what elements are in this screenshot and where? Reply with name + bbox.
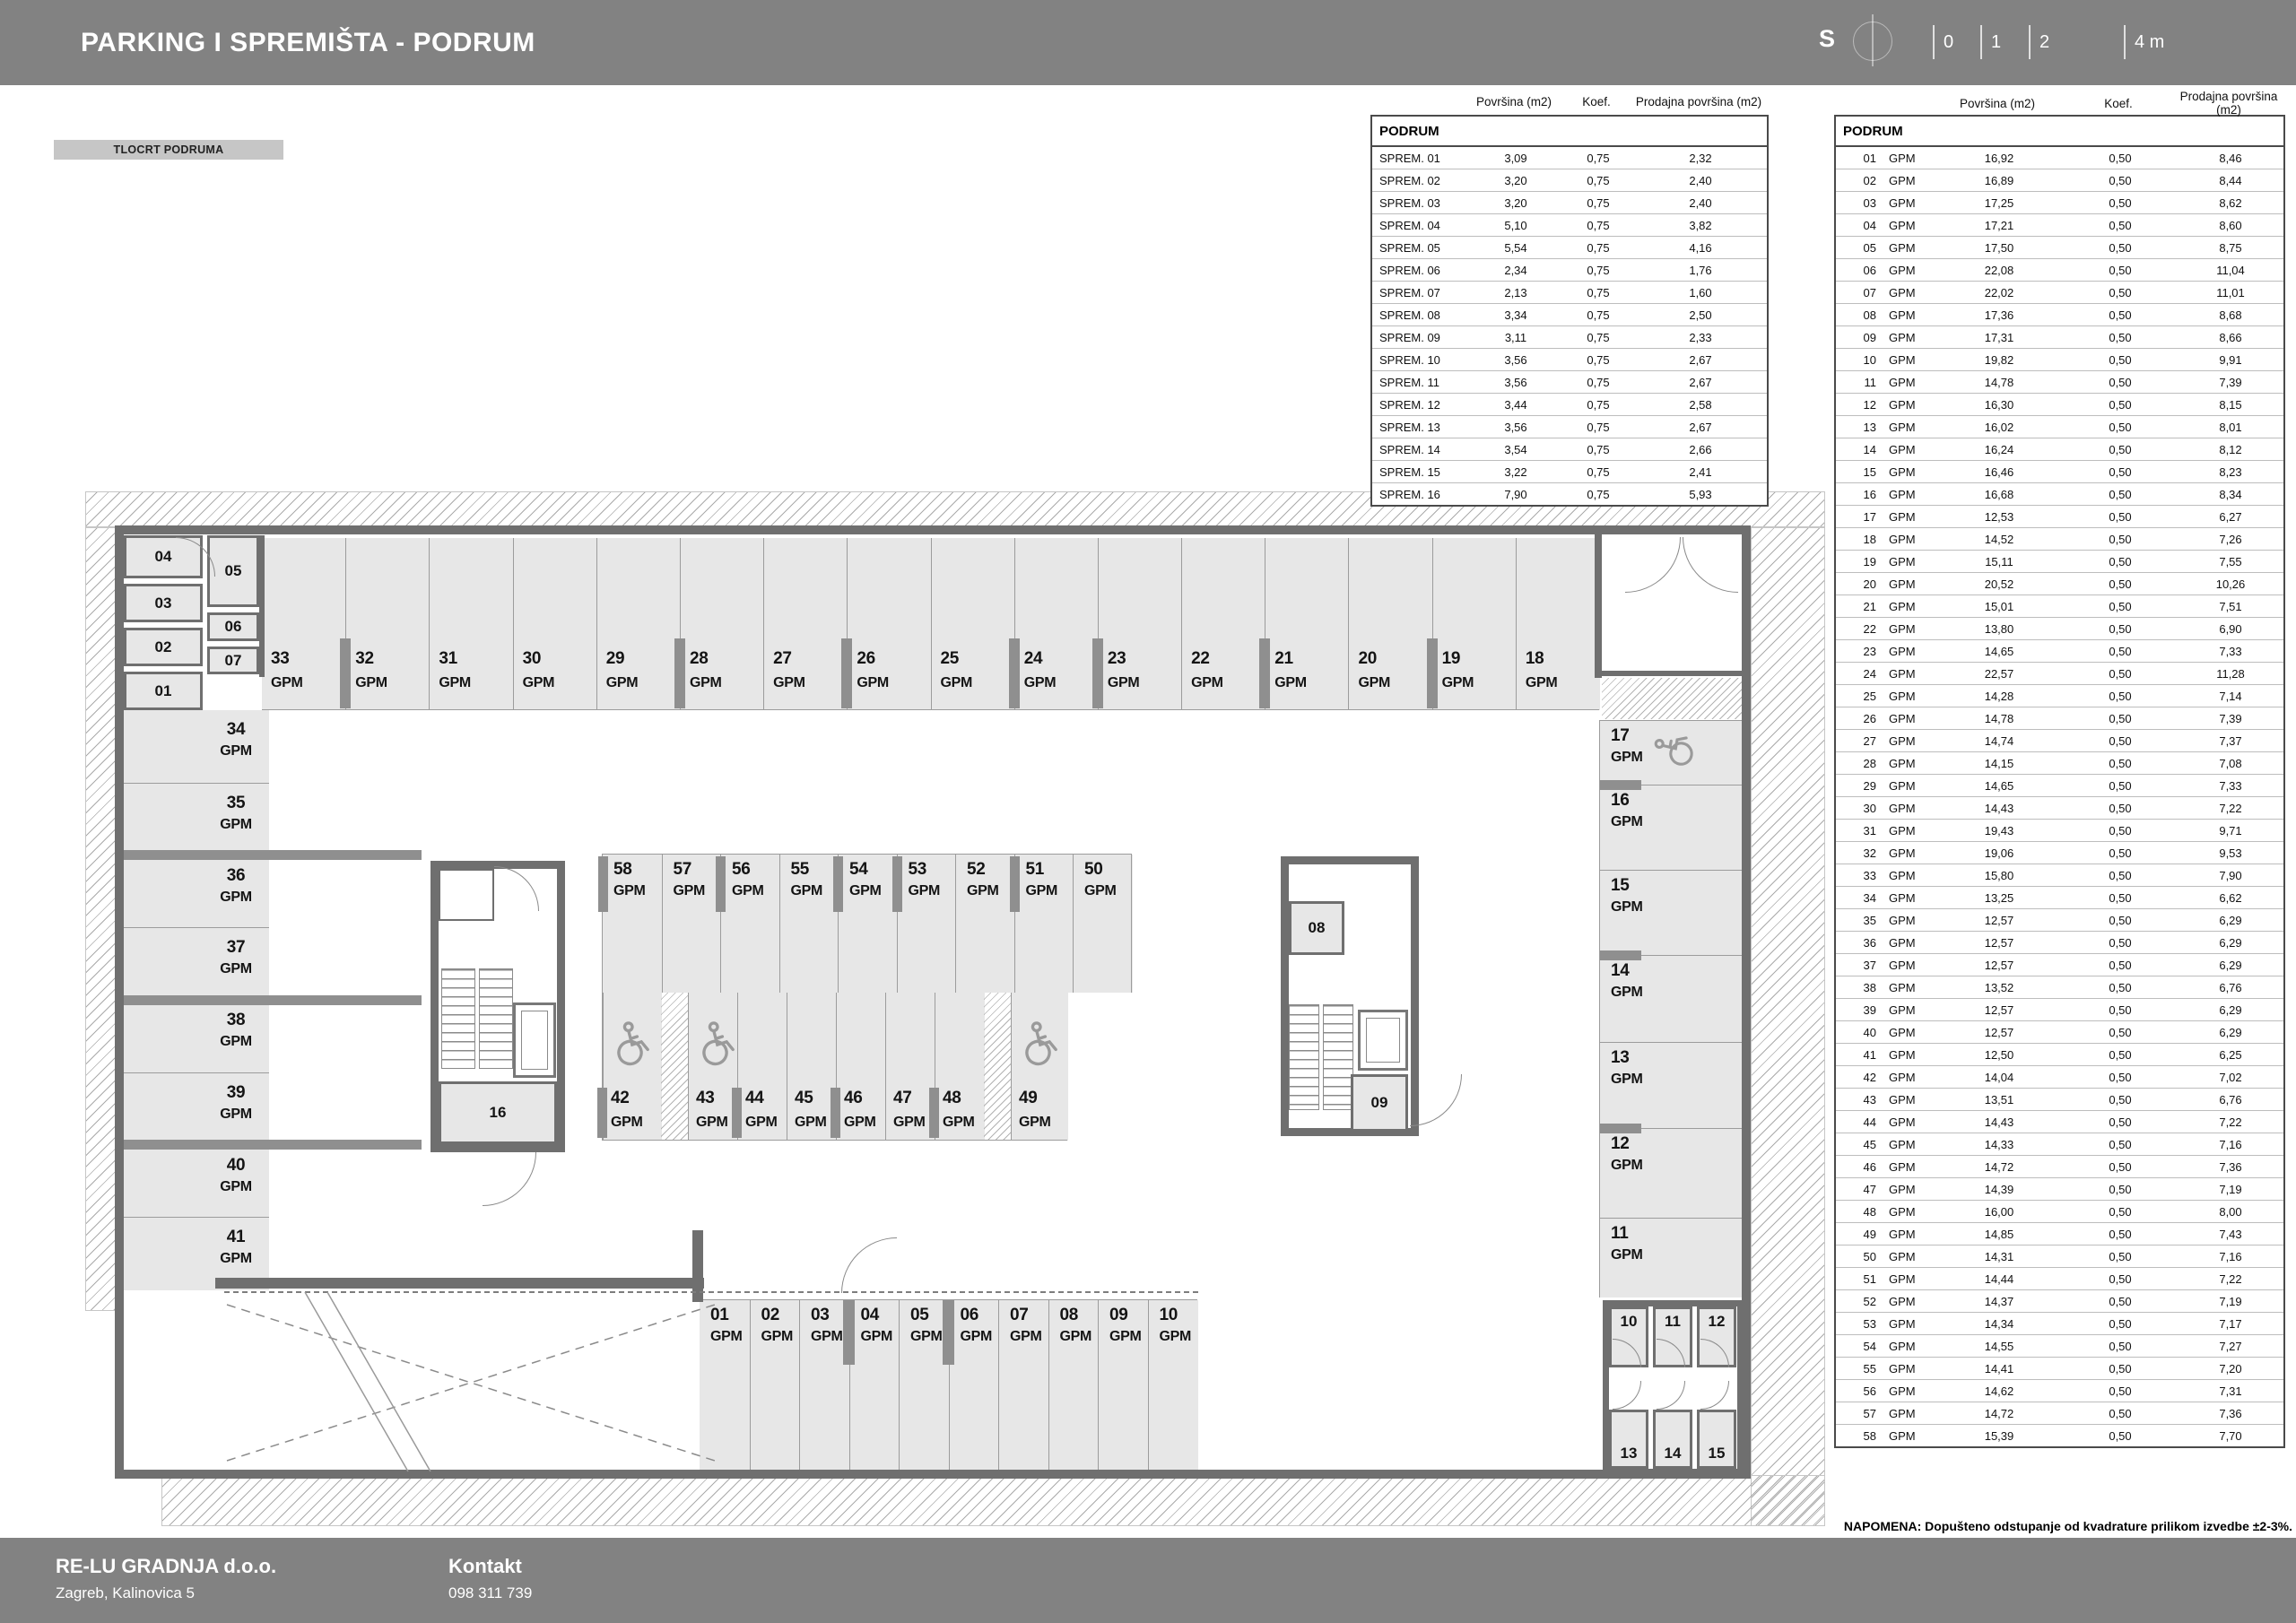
cell-povrsina: 12,50	[1932, 1048, 2066, 1062]
row-unit: GPM	[1876, 891, 1932, 905]
cell-koef: 0,50	[2066, 1138, 2174, 1151]
cell-povrsina: 17,21	[1932, 219, 2066, 232]
cell-prodajna: 2,41	[1631, 465, 1770, 479]
row-number: 24	[1836, 667, 1876, 681]
cell-povrsina: 14,28	[1932, 690, 2066, 703]
pillar	[1427, 638, 1438, 708]
parking-spot-19: 19GPM	[1432, 538, 1517, 710]
ramp-lines	[220, 1289, 722, 1475]
cell-povrsina: 12,57	[1932, 936, 2066, 950]
table-row: 22GPM13,800,506,90	[1836, 618, 2283, 640]
cell-prodajna: 7,26	[2174, 533, 2287, 546]
cell-povrsina: 22,02	[1932, 286, 2066, 299]
stairs	[479, 968, 513, 1069]
cell-koef: 0,50	[2066, 353, 2174, 367]
spot-edge	[602, 854, 1132, 855]
cell-koef: 0,50	[2066, 891, 2174, 905]
cell-prodajna: 8,23	[2174, 465, 2287, 479]
parking-spot-34: 34GPM	[124, 710, 269, 784]
spot-number: 03	[811, 1306, 830, 1324]
cell-prodajna: 6,29	[2174, 914, 2287, 927]
cell-koef: 0,50	[2066, 1026, 2174, 1039]
cell-koef: 0,75	[1566, 174, 1631, 187]
row-number: 53	[1836, 1317, 1876, 1331]
spot-unit: GPM	[732, 884, 764, 898]
spot-unit: GPM	[1611, 985, 1643, 1000]
spot-label: 35GPM	[210, 794, 262, 832]
cell-prodajna: 6,90	[2174, 622, 2287, 636]
cell-koef: 0,75	[1566, 152, 1631, 165]
spot-unit: GPM	[1611, 1248, 1643, 1263]
cell-koef: 0,50	[2066, 712, 2174, 725]
cell-prodajna: 10,26	[2174, 577, 2287, 591]
row-label: SPREM. 14	[1372, 443, 1465, 456]
row-unit: GPM	[1876, 1250, 1932, 1263]
cell-prodajna: 8,15	[2174, 398, 2287, 412]
cell-koef: 0,75	[1566, 241, 1631, 255]
cell-prodajna: 6,29	[2174, 1026, 2287, 1039]
cell-povrsina: 14,62	[1932, 1384, 2066, 1398]
pillar	[1600, 780, 1641, 790]
spot-unit: GPM	[1611, 751, 1643, 765]
spot-unit: GPM	[1109, 1330, 1142, 1344]
table-row: 58GPM15,390,507,70	[1836, 1425, 2283, 1446]
spot-number: 36	[210, 867, 262, 884]
table-row: 33GPM15,800,507,90	[1836, 864, 2283, 887]
table-row: 20GPM20,520,5010,26	[1836, 573, 2283, 595]
company-name: RE-LU GRADNJA d.o.o.	[56, 1555, 276, 1578]
row-number: 14	[1836, 443, 1876, 456]
spot-unit: GPM	[1060, 1330, 1092, 1344]
cell-povrsina: 19,43	[1932, 824, 2066, 838]
spot-unit: GPM	[1108, 676, 1140, 690]
cell-koef: 0,50	[2066, 398, 2174, 412]
cell-povrsina: 13,25	[1932, 891, 2066, 905]
parking-spot-15: 15GPM	[1600, 870, 1742, 955]
row-unit: GPM	[1876, 1115, 1932, 1129]
cell-povrsina: 14,43	[1932, 1115, 2066, 1129]
row-number: 36	[1836, 936, 1876, 950]
cell-koef: 0,50	[2066, 645, 2174, 658]
cell-povrsina: 14,72	[1932, 1407, 2066, 1420]
row-label: SPREM. 08	[1372, 308, 1465, 322]
row-unit: GPM	[1876, 645, 1932, 658]
contact-label: Kontakt	[448, 1555, 522, 1578]
cell-prodajna: 7,19	[2174, 1295, 2287, 1308]
row-unit: GPM	[1876, 219, 1932, 232]
cell-povrsina: 17,31	[1932, 331, 2066, 344]
pillar	[674, 638, 685, 708]
spot-label: 38GPM	[210, 1011, 262, 1049]
parking-spot-57: 57GPM	[662, 855, 722, 993]
row-unit: GPM	[1876, 1340, 1932, 1353]
row-number: 35	[1836, 914, 1876, 927]
cell-prodajna: 7,37	[2174, 734, 2287, 748]
row-number: 42	[1836, 1071, 1876, 1084]
table-row: SPREM. 167,900,755,93	[1372, 483, 1767, 505]
cell-povrsina: 14,31	[1932, 1250, 2066, 1263]
spot-unit: GPM	[1274, 676, 1307, 690]
row-unit: GPM	[1876, 734, 1932, 748]
cell-prodajna: 11,04	[2174, 264, 2287, 277]
parking-spot-50: 50GPM	[1073, 855, 1133, 993]
cell-prodajna: 8,44	[2174, 174, 2287, 187]
row-number: 19	[1836, 555, 1876, 568]
row-unit: GPM	[1876, 241, 1932, 255]
table-row: 35GPM12,570,506,29	[1836, 909, 2283, 932]
parking-spot-47: 47GPM	[885, 993, 935, 1141]
spot-number: 31	[439, 650, 457, 667]
parking-spot-46: 46GPM	[836, 993, 886, 1141]
parking-spot-17: 17GPM	[1600, 720, 1742, 785]
row-unit: GPM	[1876, 1093, 1932, 1107]
spot-unit: GPM	[773, 676, 805, 690]
row-number: 23	[1836, 645, 1876, 658]
row-label: SPREM. 16	[1372, 488, 1465, 501]
cell-povrsina: 14,39	[1932, 1183, 2066, 1196]
cell-koef: 0,50	[2066, 959, 2174, 972]
parking-spot-37: 37GPM	[124, 927, 269, 1001]
row-unit: GPM	[1876, 1183, 1932, 1196]
cell-koef: 0,75	[1566, 353, 1631, 367]
cell-prodajna: 3,82	[1631, 219, 1770, 232]
wall	[215, 1278, 704, 1289]
cell-koef: 0,50	[2066, 1362, 2174, 1376]
row-unit: GPM	[1876, 1228, 1932, 1241]
spot-number: 24	[1024, 650, 1043, 667]
table-row: 56GPM14,620,507,31	[1836, 1380, 2283, 1402]
spot-number: 56	[732, 861, 751, 878]
row-unit: GPM	[1876, 331, 1932, 344]
row-number: 20	[1836, 577, 1876, 591]
table-row: SPREM. 113,560,752,67	[1372, 371, 1767, 394]
table-row: 26GPM14,780,507,39	[1836, 707, 2283, 730]
spot-number: 28	[690, 650, 709, 667]
row-number: 25	[1836, 690, 1876, 703]
table-row: 55GPM14,410,507,20	[1836, 1358, 2283, 1380]
spot-number: 34	[210, 721, 262, 738]
table-row: 34GPM13,250,506,62	[1836, 887, 2283, 909]
wheelchair-icon	[1015, 1020, 1064, 1072]
wall-divider	[124, 1140, 422, 1150]
cell-povrsina: 3,54	[1465, 443, 1566, 456]
row-label: SPREM. 01	[1372, 152, 1465, 165]
cell-povrsina: 20,52	[1932, 577, 2066, 591]
cell-koef: 0,50	[2066, 779, 2174, 793]
cell-koef: 0,50	[2066, 264, 2174, 277]
cell-prodajna: 2,32	[1631, 152, 1770, 165]
row-unit: GPM	[1876, 152, 1932, 165]
row-unit: GPM	[1876, 690, 1932, 703]
table-row: 27GPM14,740,507,37	[1836, 730, 2283, 752]
spot-number: 23	[1108, 650, 1126, 667]
row-unit: GPM	[1876, 802, 1932, 815]
row-number: 29	[1836, 779, 1876, 793]
spot-number: 58	[613, 861, 632, 878]
spot-unit: GPM	[1010, 1330, 1042, 1344]
spot-number: 51	[1026, 861, 1045, 878]
spot-unit: GPM	[941, 676, 973, 690]
parking-spot-52: 52GPM	[955, 855, 1015, 993]
cell-povrsina: 14,85	[1932, 1228, 2066, 1241]
table-row: 52GPM14,370,507,19	[1836, 1290, 2283, 1313]
cell-prodajna: 2,40	[1631, 174, 1770, 187]
cell-koef: 0,75	[1566, 488, 1631, 501]
cell-koef: 0,50	[2066, 465, 2174, 479]
cell-prodajna: 9,91	[2174, 353, 2287, 367]
row-number: 16	[1836, 488, 1876, 501]
row-number: 50	[1836, 1250, 1876, 1263]
table-row: SPREM. 093,110,752,33	[1372, 326, 1767, 349]
cell-koef: 0,50	[2066, 622, 2174, 636]
row-unit: GPM	[1876, 824, 1932, 838]
row-unit: GPM	[1876, 353, 1932, 367]
cell-prodajna: 2,33	[1631, 331, 1770, 344]
spot-unit: GPM	[910, 1330, 943, 1344]
cell-povrsina: 3,56	[1465, 376, 1566, 389]
cell-koef: 0,50	[2066, 667, 2174, 681]
spot-unit: GPM	[439, 676, 471, 690]
table-row: SPREM. 143,540,752,66	[1372, 438, 1767, 461]
cell-povrsina: 16,89	[1932, 174, 2066, 187]
cell-prodajna: 8,34	[2174, 488, 2287, 501]
parking-spot-29: 29GPM	[596, 538, 681, 710]
parking-spot-31: 31GPM	[429, 538, 513, 710]
table-row: 50GPM14,310,507,16	[1836, 1245, 2283, 1268]
table-row: SPREM. 023,200,752,40	[1372, 169, 1767, 192]
cell-povrsina: 14,78	[1932, 712, 2066, 725]
storage-room-14: 14	[1653, 1410, 1692, 1469]
spot-label: 36GPM	[210, 867, 262, 905]
spot-label: 40GPM	[210, 1157, 262, 1194]
cell-prodajna: 7,22	[2174, 1115, 2287, 1129]
storage-room-15: 15	[1697, 1410, 1736, 1469]
cell-koef: 0,75	[1566, 465, 1631, 479]
spot-number: 14	[1611, 962, 1630, 979]
row-number: 39	[1836, 1003, 1876, 1017]
parking-spot-30: 30GPM	[513, 538, 597, 710]
parking-spot-02: 02GPM	[750, 1300, 801, 1470]
cell-povrsina: 17,36	[1932, 308, 2066, 322]
pillar	[597, 1088, 607, 1138]
cell-povrsina: 14,33	[1932, 1138, 2066, 1151]
cell-prodajna: 7,51	[2174, 600, 2287, 613]
cell-povrsina: 3,22	[1465, 465, 1566, 479]
row-number: 06	[1836, 264, 1876, 277]
row-unit: GPM	[1876, 286, 1932, 299]
row-label: SPREM. 05	[1372, 241, 1465, 255]
cell-koef: 0,50	[2066, 1003, 2174, 1017]
cell-koef: 0,75	[1566, 196, 1631, 210]
row-unit: GPM	[1876, 981, 1932, 994]
row-number: 52	[1836, 1295, 1876, 1308]
table-row: 06GPM22,080,5011,04	[1836, 259, 2283, 282]
parking-spot-53: 53GPM	[897, 855, 957, 993]
row-number: 41	[1836, 1048, 1876, 1062]
spot-number: 49	[1019, 1089, 1038, 1107]
spot-number: 38	[210, 1011, 262, 1028]
spot-unit: GPM	[674, 884, 706, 898]
row-unit: GPM	[1876, 936, 1932, 950]
cell-prodajna: 1,76	[1631, 264, 1770, 277]
spot-number: 22	[1191, 650, 1210, 667]
cell-koef: 0,50	[2066, 824, 2174, 838]
table-row: SPREM. 103,560,752,67	[1372, 349, 1767, 371]
spot-unit: GPM	[861, 1330, 893, 1344]
spot-number: 55	[791, 861, 810, 878]
cell-koef: 0,50	[2066, 510, 2174, 524]
parking-spot-14: 14GPM	[1600, 955, 1742, 1042]
cell-koef: 0,50	[2066, 1115, 2174, 1129]
cell-koef: 0,75	[1566, 421, 1631, 434]
cell-prodajna: 8,12	[2174, 443, 2287, 456]
row-number: 05	[1836, 241, 1876, 255]
row-number: 34	[1836, 891, 1876, 905]
terrain-hatch	[1751, 527, 1825, 1526]
company-address: Zagreb, Kalinovica 5	[56, 1584, 195, 1602]
cell-prodajna: 6,29	[2174, 936, 2287, 950]
cell-povrsina: 13,51	[1932, 1093, 2066, 1107]
spot-unit: GPM	[893, 1115, 926, 1130]
cell-povrsina: 3,09	[1465, 152, 1566, 165]
cell-povrsina: 13,52	[1932, 981, 2066, 994]
cell-prodajna: 8,00	[2174, 1205, 2287, 1219]
cell-povrsina: 14,52	[1932, 533, 2066, 546]
cell-koef: 0,50	[2066, 1093, 2174, 1107]
cell-koef: 0,75	[1566, 376, 1631, 389]
row-number: 47	[1836, 1183, 1876, 1196]
storage-room-13: 13	[1609, 1410, 1648, 1469]
wall	[259, 535, 265, 677]
spot-number: 50	[1084, 861, 1103, 878]
table-row: 13GPM16,020,508,01	[1836, 416, 2283, 438]
cell-koef: 0,50	[2066, 1183, 2174, 1196]
row-unit: GPM	[1876, 959, 1932, 972]
storage-room-07: 07	[207, 647, 259, 674]
spot-edge	[262, 709, 1599, 710]
storage-room-16: 16	[439, 1081, 557, 1144]
spot-number: 08	[1060, 1306, 1079, 1324]
pillar	[1009, 638, 1020, 708]
spot-number: 42	[611, 1089, 630, 1107]
spot-label: 34GPM	[210, 721, 262, 759]
cell-povrsina: 16,02	[1932, 421, 2066, 434]
row-number: 15	[1836, 465, 1876, 479]
wheelchair-icon	[607, 1020, 656, 1072]
row-number: 08	[1836, 308, 1876, 322]
wall-divider	[124, 995, 422, 1005]
row-unit: GPM	[1876, 465, 1932, 479]
spot-number: 33	[271, 650, 290, 667]
cell-koef: 0,50	[2066, 152, 2174, 165]
spot-number: 02	[761, 1306, 780, 1324]
table-header: Površina (m2) Koef. Prodajna površina (m…	[1834, 90, 2285, 113]
cell-prodajna: 2,67	[1631, 376, 1770, 389]
parking-spot-45: 45GPM	[787, 993, 837, 1141]
table-row: 45GPM14,330,507,16	[1836, 1133, 2283, 1156]
parking-spot-06: 06GPM	[949, 1300, 1000, 1470]
terrain-hatch	[85, 527, 118, 1311]
parking-spot-58: 58GPM	[603, 855, 663, 993]
storage-room-08: 08	[1289, 901, 1344, 955]
table-row: 48GPM16,000,508,00	[1836, 1201, 2283, 1223]
pillar	[1600, 950, 1641, 960]
spot-number: 53	[909, 861, 927, 878]
row-number: 04	[1836, 219, 1876, 232]
parking-spot-23: 23GPM	[1098, 538, 1182, 710]
table-row: 05GPM17,500,508,75	[1836, 237, 2283, 259]
cell-povrsina: 14,65	[1932, 645, 2066, 658]
cell-povrsina: 16,46	[1932, 465, 2066, 479]
row-number: 51	[1836, 1272, 1876, 1286]
row-unit: GPM	[1876, 757, 1932, 770]
cell-prodajna: 9,71	[2174, 824, 2287, 838]
cell-koef: 0,50	[2066, 1407, 2174, 1420]
spot-number: 26	[857, 650, 875, 667]
cell-povrsina: 16,24	[1932, 443, 2066, 456]
parking-spot-56: 56GPM	[720, 855, 780, 993]
row-label: SPREM. 09	[1372, 331, 1465, 344]
cell-koef: 0,50	[2066, 802, 2174, 815]
row-unit: GPM	[1876, 1205, 1932, 1219]
row-label: SPREM. 02	[1372, 174, 1465, 187]
cell-prodajna: 7,16	[2174, 1250, 2287, 1263]
row-unit: GPM	[1876, 1138, 1932, 1151]
cell-prodajna: 6,62	[2174, 891, 2287, 905]
spot-edge	[1599, 720, 1600, 1298]
cell-prodajna: 6,29	[2174, 959, 2287, 972]
row-number: 54	[1836, 1340, 1876, 1353]
sheet-canvas: PARKING I SPREMIŠTA - PODRUM S 0 1 2 4 m…	[0, 0, 2296, 1623]
cell-povrsina: 3,56	[1465, 421, 1566, 434]
cell-koef: 0,50	[2066, 846, 2174, 860]
row-unit: GPM	[1876, 1003, 1932, 1017]
spot-number: 54	[849, 861, 868, 878]
spot-number: 04	[861, 1306, 880, 1324]
table-row: 28GPM14,150,507,08	[1836, 752, 2283, 775]
row-number: 22	[1836, 622, 1876, 636]
spot-number: 40	[210, 1157, 262, 1174]
row-number: 56	[1836, 1384, 1876, 1398]
spot-number: 52	[967, 861, 986, 878]
cell-prodajna: 7,17	[2174, 1317, 2287, 1331]
table-row: 08GPM17,360,508,68	[1836, 304, 2283, 326]
row-label: SPREM. 07	[1372, 286, 1465, 299]
table-row: 41GPM12,500,506,25	[1836, 1044, 2283, 1066]
cell-koef: 0,50	[2066, 488, 2174, 501]
table-row: 16GPM16,680,508,34	[1836, 483, 2283, 506]
parking-spot-48: 48GPM	[935, 993, 985, 1141]
spot-edge	[603, 1140, 1067, 1141]
table-row: 14GPM16,240,508,12	[1836, 438, 2283, 461]
table-row: 49GPM14,850,507,43	[1836, 1223, 2283, 1245]
row-unit: GPM	[1876, 510, 1932, 524]
cell-prodajna: 7,39	[2174, 376, 2287, 389]
spot-unit: GPM	[210, 1180, 262, 1194]
spot-number: 57	[674, 861, 692, 878]
cell-koef: 0,50	[2066, 421, 2174, 434]
spot-unit: GPM	[811, 1330, 843, 1344]
spot-unit: GPM	[1611, 815, 1643, 829]
cell-koef: 0,50	[2066, 1228, 2174, 1241]
cell-prodajna: 6,29	[2174, 1003, 2287, 1017]
row-number: 17	[1836, 510, 1876, 524]
table-row: SPREM. 153,220,752,41	[1372, 461, 1767, 483]
parking-spot-09: 09GPM	[1098, 1300, 1149, 1470]
parking-spot-35: 35GPM	[124, 783, 269, 856]
row-unit: GPM	[1876, 533, 1932, 546]
cell-povrsina: 15,01	[1932, 600, 2066, 613]
